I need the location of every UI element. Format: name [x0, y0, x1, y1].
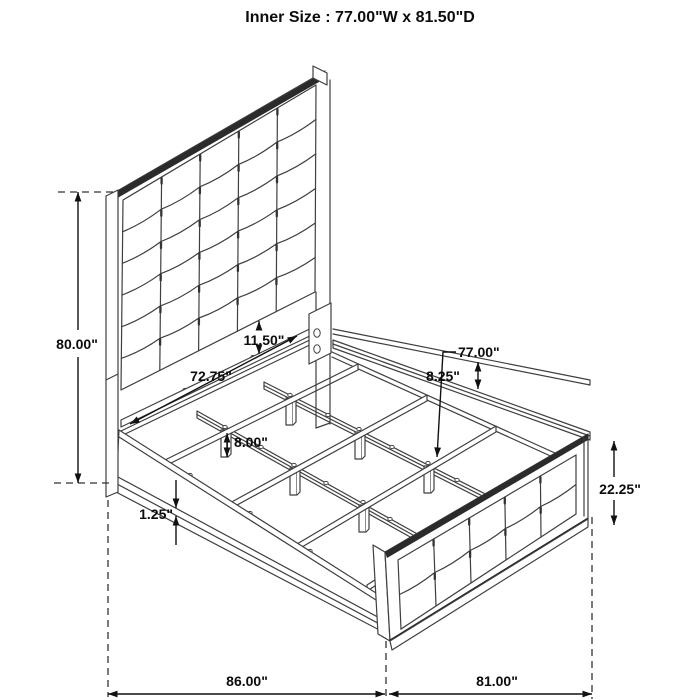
bed-dimension-diagram: Inner Size : 77.00"W x 81.50"D 80.00" 11… [0, 0, 700, 700]
dim-label-rail-lip: 1.25" [139, 506, 173, 522]
page-title: Inner Size : 77.00"W x 81.50"D [245, 9, 475, 26]
screw-hole [455, 478, 459, 481]
bracket-hole [314, 329, 320, 337]
screw-hole [288, 393, 292, 396]
screw-hole [324, 481, 328, 484]
arrowhead [389, 691, 399, 698]
arrowhead [376, 691, 386, 698]
slat-ledge-lines [332, 352, 588, 473]
headboard [106, 66, 331, 497]
arrowhead [434, 447, 441, 457]
footboard [373, 434, 588, 650]
dim-label-overall-width: 81.00" [476, 673, 518, 689]
dim-label-slat-length: 77.00" [458, 344, 500, 360]
arrowhead [583, 691, 593, 698]
bracket-hole [314, 345, 320, 353]
arrowhead [256, 321, 263, 331]
dim-label-head-rail-width: 72.75" [190, 368, 232, 384]
dim-label-leg-height: 8.00" [234, 434, 268, 450]
dim-label-headboard-height: 80.00" [56, 336, 98, 352]
arrowhead [611, 516, 618, 526]
arrowhead [475, 380, 482, 390]
arrowhead [611, 441, 618, 451]
arrowhead [108, 691, 118, 698]
headboard-left-post [106, 190, 118, 497]
screw-hole [388, 517, 392, 520]
screw-hole [292, 463, 296, 466]
screw-hole [223, 425, 227, 428]
dim-label-footboard-height: 22.25" [599, 481, 641, 497]
dim-label-overall-depth: 86.00" [226, 673, 268, 689]
screw-hole [426, 461, 430, 464]
screw-hole [361, 500, 365, 503]
screw-hole [390, 445, 394, 448]
dim-label-panel-gap: 11.50" [244, 332, 285, 348]
arrowhead [75, 474, 82, 484]
headboard-right-post [316, 80, 330, 428]
screw-hole [357, 427, 361, 430]
arrowhead [75, 192, 82, 202]
dim-label-rail-drop: 8.25" [426, 368, 460, 384]
